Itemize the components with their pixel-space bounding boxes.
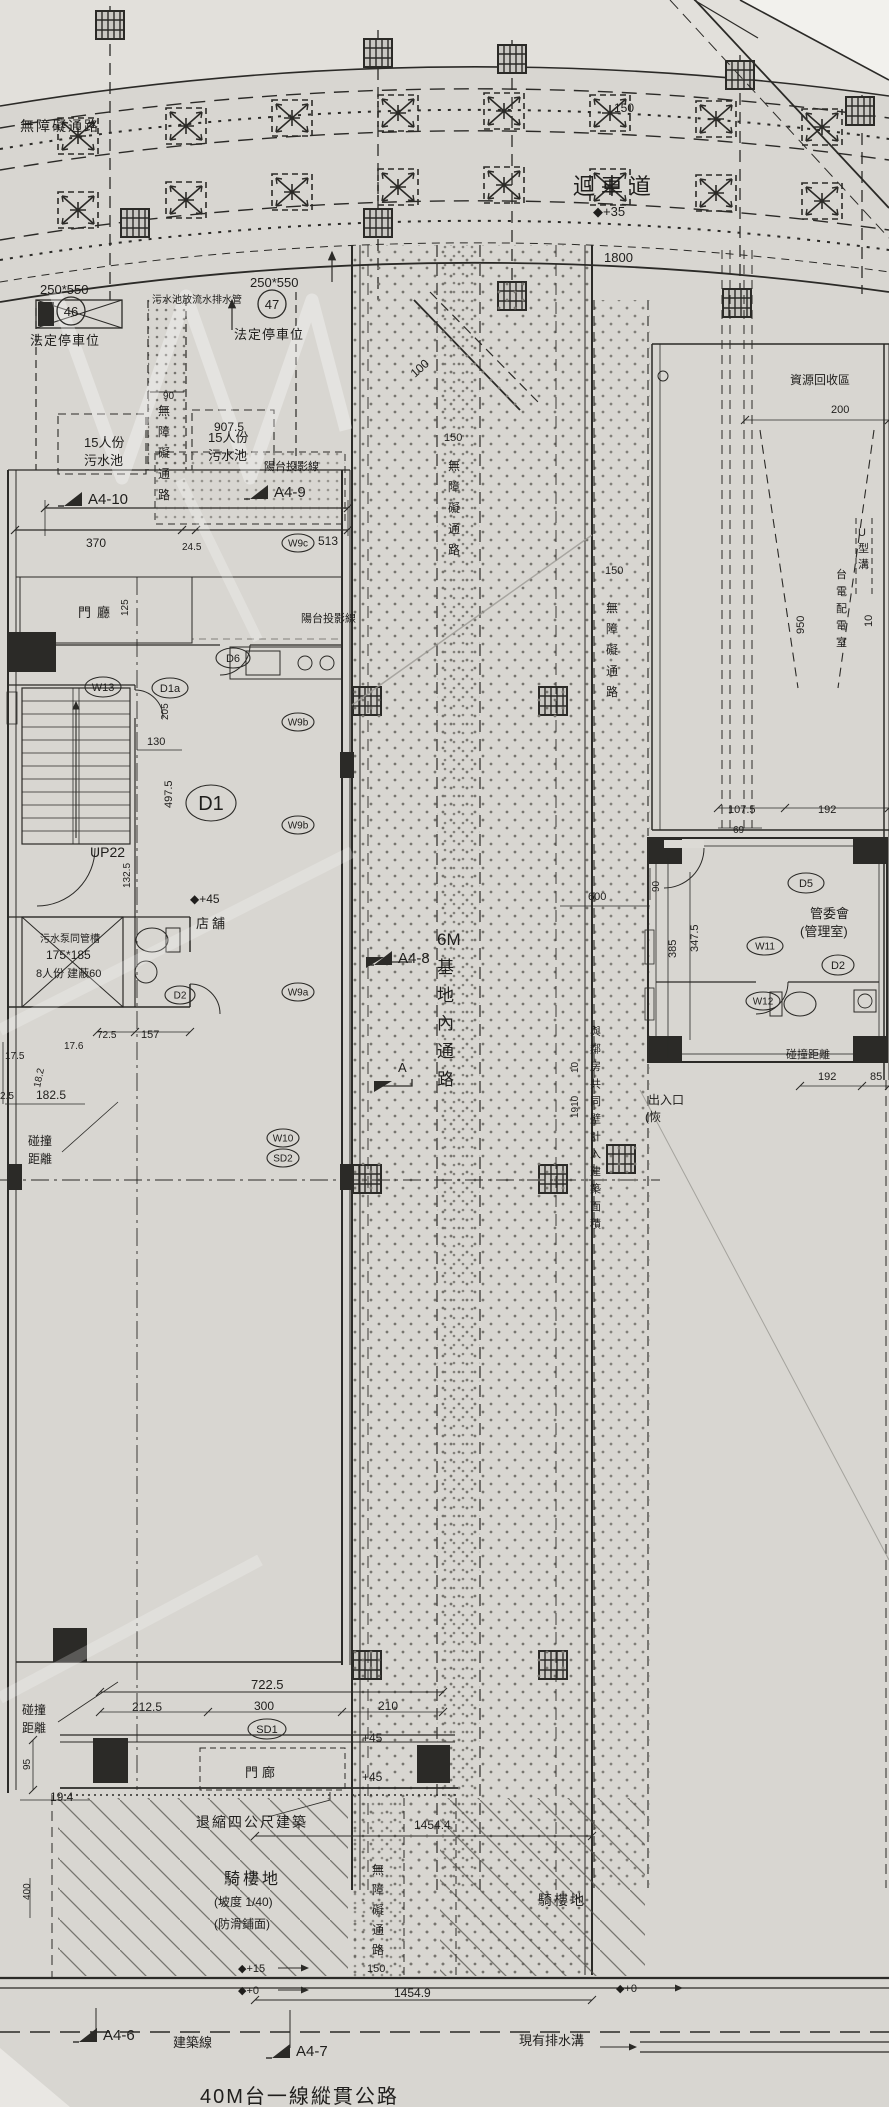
plan-label: 192 <box>818 804 836 816</box>
plan-label: 132.5 <box>122 863 133 888</box>
plan-label: 85 <box>870 1071 882 1083</box>
plan-label: +45 <box>362 1770 383 1784</box>
plan-label: 385 <box>667 940 679 958</box>
plan-label: 950 <box>795 616 807 634</box>
plan-label: 迴車道 <box>573 174 657 199</box>
plan-label: 17.5 <box>5 1051 25 1062</box>
plan-label: 40M台一線縱貫公路 <box>200 2085 399 2107</box>
svg-text:A4-10: A4-10 <box>88 491 128 508</box>
svg-text:W12: W12 <box>753 997 774 1008</box>
plan-label: 距離 <box>22 1721 46 1735</box>
plan-label: 212.5 <box>132 1700 162 1714</box>
plan-label: ◆+0 <box>238 1985 259 1997</box>
svg-text:W9b: W9b <box>288 718 309 729</box>
svg-text:W10: W10 <box>273 1134 294 1145</box>
svg-text:D2: D2 <box>831 960 845 972</box>
site-plan-drawing: 無障礙通路迴車道◆+351501800污水池放流水排水管250*550250*5… <box>0 0 889 2107</box>
plan-label: 建築線 <box>173 2035 212 2050</box>
svg-text:W11: W11 <box>755 942 775 953</box>
plan-label: (管理室) <box>800 924 848 939</box>
plan-label: 無障礙通路 <box>158 403 170 502</box>
plan-label: 資源回收區 <box>790 373 850 387</box>
plan-label: ◆+35 <box>593 204 625 219</box>
plan-label: ◆+45 <box>190 892 220 906</box>
plan-label: (恢 <box>645 1110 661 1124</box>
plan-label: 1454.9 <box>394 1986 431 2000</box>
plan-label: 192 <box>818 1071 836 1083</box>
plan-label: 無障礙通路 <box>448 458 460 557</box>
svg-text:SD2: SD2 <box>273 1154 293 1165</box>
svg-text:W9b: W9b <box>288 821 309 832</box>
plan-label: 69 <box>733 825 745 836</box>
plan-label: 210 <box>378 1699 398 1713</box>
plan-label: 1910 <box>570 1095 581 1118</box>
plan-label: 出入口 <box>648 1093 684 1107</box>
plan-label: 騎樓地 <box>224 1870 281 1888</box>
plan-label: 現有排水溝 <box>519 2033 584 2048</box>
plan-label: 1800 <box>604 250 633 265</box>
svg-text:W9c: W9c <box>288 539 308 550</box>
plan-label: 182.5 <box>36 1088 66 1102</box>
plan-label: 347.5 <box>689 924 701 952</box>
svg-text:A4-8: A4-8 <box>398 950 430 967</box>
plan-label: 10 <box>863 615 875 627</box>
plan-label: 497.5 <box>163 780 175 808</box>
svg-text:SD1: SD1 <box>256 1724 277 1736</box>
plan-label: 台電配電室 <box>836 567 847 649</box>
plan-label: 250*550 <box>250 275 298 290</box>
plan-label: 250*550 <box>40 282 88 297</box>
plan-label: 15人份 <box>84 435 124 450</box>
plan-label: 門廳 <box>78 605 116 620</box>
plan-label: 907.5 <box>214 420 244 434</box>
plan-label: 72.5 <box>97 1030 117 1041</box>
plan-label: 污水池放流水排水管 <box>152 293 242 306</box>
plan-label: 1454.4 <box>414 1818 451 1832</box>
plan-label: 8人份 建蔽60 <box>36 966 101 980</box>
plan-label: 污水池 <box>208 448 247 463</box>
plan-label: 17.6 <box>64 1041 84 1052</box>
plan-label: ◆+0 <box>616 1983 637 1995</box>
plan-label: 陽台投影線 <box>301 611 356 625</box>
plan-label: 24.5 <box>182 542 202 553</box>
svg-text:47: 47 <box>265 297 279 312</box>
plan-label: 107.5 <box>728 804 756 816</box>
plan-label: 門廊 <box>245 1765 279 1780</box>
plan-label: (防滑鋪面) <box>214 1916 270 1931</box>
plan-label: 退縮四公尺建築 <box>196 1814 308 1830</box>
plan-label: 205 <box>160 703 171 720</box>
plan-label: 店舖 <box>196 916 228 931</box>
plan-label: 碰撞 <box>22 1702 46 1717</box>
plan-label: ◆+15 <box>238 1963 265 1975</box>
plan-label: 騎樓地 <box>538 1892 586 1908</box>
svg-text:D1a: D1a <box>160 683 181 695</box>
plan-label: 法定停車位 <box>30 333 100 348</box>
plan-label: 150 <box>605 565 623 577</box>
plan-label: UP22 <box>90 844 125 860</box>
plan-label: 600 <box>588 891 606 903</box>
plan-label: 90 <box>651 880 662 892</box>
plan-label: 150 <box>614 101 634 115</box>
plan-label: 碰撞距離 <box>786 1047 830 1061</box>
plan-label: 污水池 <box>84 453 123 468</box>
svg-text:W9a: W9a <box>288 988 309 999</box>
plan-label: 距離 <box>28 1152 52 1166</box>
plan-label: +45 <box>362 1731 383 1745</box>
plan-label: 10 <box>570 1061 581 1073</box>
svg-text:D6: D6 <box>226 653 240 665</box>
plan-label: 陽台投影線 <box>264 459 319 473</box>
plan-label: 175*185 <box>46 948 91 962</box>
plan-label: 400 <box>22 1883 33 1900</box>
svg-text:D2: D2 <box>174 991 187 1002</box>
plan-label: 513 <box>318 534 338 548</box>
plan-label: 150 <box>367 1963 385 1975</box>
plan-label: 125 <box>120 599 131 616</box>
plan-label: 90 <box>163 391 175 402</box>
svg-text:D5: D5 <box>799 878 813 890</box>
plan-label: 370 <box>86 536 106 550</box>
plan-label: 無障礙通路 <box>606 600 618 699</box>
plan-label: 200 <box>831 404 849 416</box>
plan-label: 19.4 <box>50 1790 74 1804</box>
svg-text:46: 46 <box>64 304 78 319</box>
svg-text:A4-7: A4-7 <box>296 2043 328 2060</box>
plan-label: 管委會 <box>810 906 849 921</box>
plan-label: 157 <box>141 1029 159 1041</box>
plan-label: 130 <box>147 736 165 748</box>
plan-label: 2.5 <box>0 1091 14 1102</box>
plan-label: 無障礙通路 <box>372 1862 384 1957</box>
svg-text:D1: D1 <box>198 793 224 815</box>
plan-label: 污水泵同管槽 <box>40 932 100 945</box>
plan-label: 碰撞 <box>28 1133 52 1148</box>
plan-label: 300 <box>254 1699 274 1713</box>
plan-label: 法定停車位 <box>234 327 304 342</box>
svg-text:A4-9: A4-9 <box>274 484 306 501</box>
plan-label: 722.5 <box>251 1677 284 1692</box>
plan-label: A <box>398 1060 407 1075</box>
plan-label: 95 <box>22 1758 33 1770</box>
plan-label: (坡度 1/40) <box>214 1894 273 1909</box>
site-plan-sheet: 無障礙通路迴車道◆+351501800污水池放流水排水管250*550250*5… <box>0 0 889 2107</box>
svg-text:W13: W13 <box>92 682 115 694</box>
svg-text:A4-6: A4-6 <box>103 2027 135 2044</box>
plan-label: 無障礙通路 <box>20 118 100 134</box>
plan-label: 150 <box>444 432 462 444</box>
